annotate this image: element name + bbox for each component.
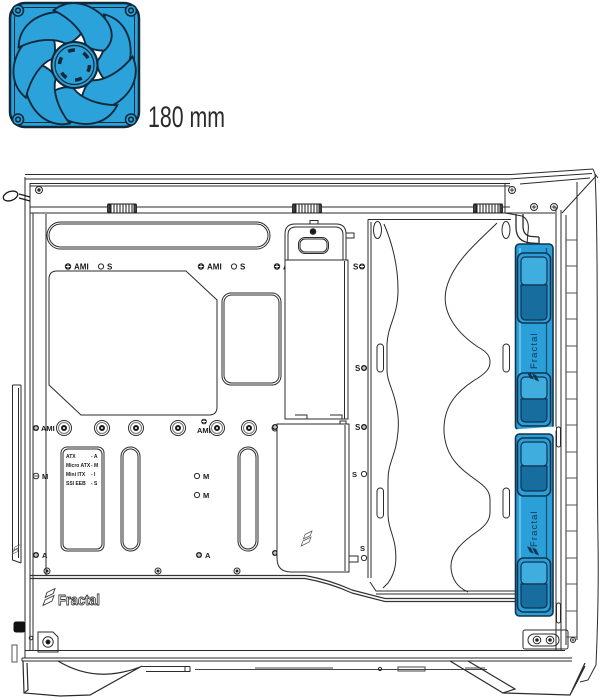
svg-text:Fractal: Fractal [529, 332, 540, 369]
svg-text:180 mm: 180 mm [148, 101, 225, 134]
svg-text:S: S [352, 470, 357, 479]
svg-text:M: M [42, 472, 48, 481]
svg-text:M: M [203, 472, 209, 481]
svg-text:S: S [360, 544, 365, 553]
svg-text:Fractal: Fractal [58, 593, 100, 609]
svg-text:Micro ATX: Micro ATX [66, 463, 91, 469]
svg-text:M: M [203, 491, 209, 500]
svg-text:- A: - A [91, 454, 98, 460]
svg-text:AMI: AMI [197, 426, 211, 435]
svg-text:ATX: ATX [66, 454, 76, 460]
svg-text:- M: - M [91, 463, 98, 469]
svg-text:AMI: AMI [41, 424, 55, 433]
svg-text:A: A [205, 551, 211, 560]
svg-text:- S: - S [91, 481, 98, 487]
svg-text:A: A [42, 551, 48, 560]
svg-text:Mini ITX: Mini ITX [66, 472, 86, 478]
svg-text:Fractal: Fractal [529, 510, 540, 547]
svg-text:- I: - I [91, 472, 96, 478]
svg-text:SSI EEB: SSI EEB [66, 481, 86, 487]
